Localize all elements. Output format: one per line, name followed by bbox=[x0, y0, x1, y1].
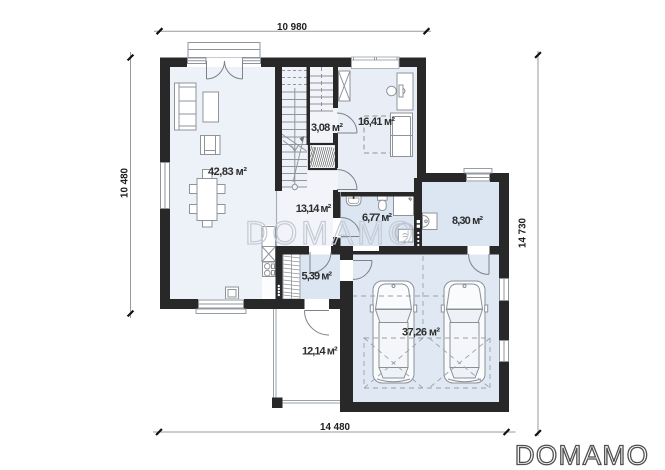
svg-text:10 480: 10 480 bbox=[120, 167, 131, 198]
svg-text:42,83 м²: 42,83 м² bbox=[208, 166, 247, 178]
svg-text:5,39 м²: 5,39 м² bbox=[302, 271, 333, 283]
svg-text:DOMAMO: DOMAMO bbox=[245, 215, 417, 251]
svg-text:3,08 м²: 3,08 м² bbox=[311, 122, 343, 134]
svg-text:37,26 м²: 37,26 м² bbox=[402, 327, 440, 339]
svg-text:16,41 м²: 16,41 м² bbox=[358, 116, 395, 128]
svg-text:8,30 м²: 8,30 м² bbox=[452, 215, 483, 227]
svg-text:12,14 м²: 12,14 м² bbox=[302, 346, 338, 358]
svg-text:13,14 м²: 13,14 м² bbox=[296, 203, 332, 215]
svg-text:14 730: 14 730 bbox=[518, 217, 529, 248]
svg-text:10 980: 10 980 bbox=[277, 22, 308, 33]
svg-text:14 480: 14 480 bbox=[320, 422, 351, 433]
svg-text:DOMAMO: DOMAMO bbox=[515, 440, 650, 470]
